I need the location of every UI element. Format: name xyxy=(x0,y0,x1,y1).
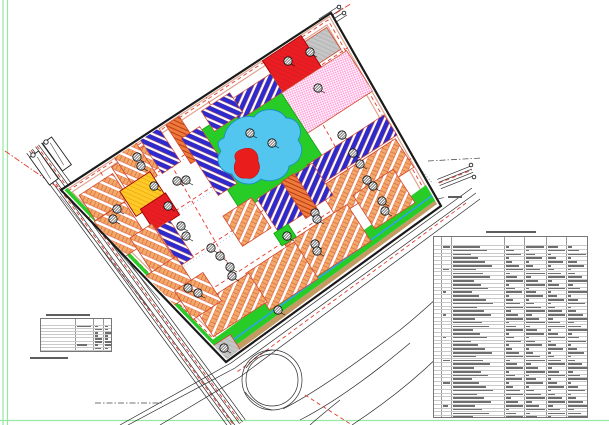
table-cell-text xyxy=(453,307,477,309)
table-cell-text xyxy=(105,335,108,337)
table-cell-text xyxy=(526,273,545,275)
table-cell-text xyxy=(506,341,521,343)
table-cell-text xyxy=(526,276,531,278)
table-cell-text xyxy=(568,356,571,358)
table-cell-text xyxy=(506,322,509,324)
table-cell-text xyxy=(548,405,553,407)
table-cell-text xyxy=(506,386,513,388)
table-cell-text xyxy=(453,337,487,339)
table-cell-text xyxy=(506,329,523,331)
table-cell-text xyxy=(526,367,538,369)
table-cell-text xyxy=(548,344,556,346)
table-cell-text xyxy=(95,329,102,331)
table-cell-text xyxy=(526,318,539,320)
table-cell-text xyxy=(526,326,530,328)
table-cell-text xyxy=(548,307,555,309)
table-cell-text xyxy=(526,348,529,350)
table-cell-text xyxy=(453,405,475,407)
table-cell-text xyxy=(506,356,523,358)
table-cell-text xyxy=(568,261,578,263)
table-cell-text xyxy=(453,344,478,346)
table-cell-text xyxy=(506,326,516,328)
table-cell-text xyxy=(548,371,559,373)
table-cell-text xyxy=(506,307,523,309)
plan-drawing-canvas xyxy=(0,0,609,425)
table-cell-text xyxy=(548,303,551,305)
table-cell-text xyxy=(548,401,565,403)
table-cell-text xyxy=(526,352,533,354)
table-cell-text xyxy=(548,322,560,324)
table-cell-text xyxy=(105,326,108,328)
table-cell-text xyxy=(548,367,552,369)
table-cell-text xyxy=(548,348,563,350)
table-cell-text xyxy=(506,416,523,418)
table-cell-text xyxy=(568,348,578,350)
table-cell-text xyxy=(506,405,523,407)
table-cell-text xyxy=(506,295,509,297)
table-cell-text xyxy=(443,405,448,407)
table-cell-text xyxy=(526,250,529,252)
table-cell-text xyxy=(506,269,523,271)
table-cell-text xyxy=(506,288,515,290)
summary-table xyxy=(40,318,112,352)
table-cell-text xyxy=(453,295,479,297)
table-cell-text xyxy=(568,295,572,297)
table-cell-text xyxy=(526,371,545,373)
table-cell-text xyxy=(526,291,536,293)
table-cell-text xyxy=(548,386,564,388)
table-cell-text xyxy=(453,284,481,286)
table-cell-text xyxy=(568,322,575,324)
table-cell-text xyxy=(95,344,98,346)
table-cell-text xyxy=(568,344,571,346)
table-cell-text xyxy=(548,378,551,380)
table-cell-text xyxy=(568,291,588,293)
table-cell-text xyxy=(453,314,491,316)
table-cell-text xyxy=(548,314,565,316)
table-cell-text xyxy=(568,307,571,309)
table-cell-text xyxy=(453,397,484,399)
table-cell-text xyxy=(526,299,529,301)
table-cell-text xyxy=(453,261,485,263)
table-cell-text xyxy=(526,356,540,358)
table-cell-text xyxy=(548,280,552,282)
table-cell-text xyxy=(443,314,446,316)
summary-table-note xyxy=(30,357,68,359)
table-cell-text xyxy=(443,337,446,339)
table-cell-text xyxy=(548,413,565,415)
table-cell-text xyxy=(568,401,584,403)
table-cell-text xyxy=(453,341,471,343)
table-cell-text xyxy=(568,284,574,286)
table-cell-text xyxy=(77,326,91,328)
table-cell-text xyxy=(453,288,488,290)
table-cell-text xyxy=(443,246,450,248)
table-cell-text xyxy=(453,291,472,293)
table-cell-text xyxy=(568,360,576,362)
table-cell-text xyxy=(526,413,530,415)
table-cell-text xyxy=(568,386,579,388)
table-cell-text xyxy=(526,409,545,411)
table-cell-text xyxy=(453,280,474,282)
table-cell-text xyxy=(506,401,518,403)
table-cell-text xyxy=(453,326,489,328)
table-cell-text xyxy=(568,371,574,373)
table-cell-text xyxy=(568,257,571,259)
table-cell-text xyxy=(526,390,534,392)
table-cell-text xyxy=(453,329,473,331)
table-cell-text xyxy=(568,337,580,339)
table-cell-text xyxy=(568,288,581,290)
table-cell-text xyxy=(506,291,522,293)
table-cell-text xyxy=(526,394,541,396)
table-cell-text xyxy=(548,360,561,362)
table-cell-text xyxy=(548,261,563,263)
table-cell-text xyxy=(526,401,532,403)
table-cell-text xyxy=(506,333,509,335)
table-cell-text xyxy=(453,363,490,365)
table-cell-text xyxy=(548,269,554,271)
table-cell-text xyxy=(95,326,99,328)
table-cell-text xyxy=(526,397,545,399)
table-cell-text xyxy=(568,341,587,343)
table-cell-text xyxy=(453,367,474,369)
table-cell-text xyxy=(526,341,535,343)
table-cell-text xyxy=(453,378,472,380)
table-cell-text xyxy=(526,333,544,335)
table-cell-text xyxy=(506,284,509,286)
edge-note-leader xyxy=(438,197,446,199)
table-cell-text xyxy=(506,299,513,301)
table-cell-text xyxy=(506,276,517,278)
table-cell-text xyxy=(526,314,532,316)
table-cell-text xyxy=(526,284,545,286)
table-cell-text xyxy=(506,348,512,350)
table-cell-text xyxy=(548,333,558,335)
table-cell-text xyxy=(548,382,557,384)
table-cell-text xyxy=(506,254,521,256)
table-cell-text xyxy=(506,363,517,365)
table-cell-text xyxy=(568,413,582,415)
table-cell-text xyxy=(548,397,562,399)
table-cell-text xyxy=(506,397,511,399)
table-cell-text xyxy=(548,375,565,377)
table-cell-text xyxy=(526,378,536,380)
table-cell-text xyxy=(548,254,551,256)
table-cell-text xyxy=(453,322,482,324)
table-cell-text xyxy=(548,390,551,392)
table-cell-text xyxy=(568,280,588,282)
table-cell-text xyxy=(568,326,582,328)
table-cell-text xyxy=(506,246,509,248)
table-cell-text xyxy=(506,337,514,339)
table-cell-text xyxy=(526,257,542,259)
table-cell-text xyxy=(105,329,108,331)
table-cell-text xyxy=(443,291,446,293)
table-cell-text xyxy=(453,265,492,267)
table-cell-text xyxy=(526,360,545,362)
table-cell-text xyxy=(526,416,537,418)
table-cell-text xyxy=(568,405,588,407)
table-cell-text xyxy=(526,269,540,271)
table-cell-text xyxy=(453,310,484,312)
table-cell-text xyxy=(548,299,564,301)
table-cell-text xyxy=(453,409,482,411)
table-cell-text xyxy=(548,265,551,267)
table-cell-text xyxy=(105,338,108,340)
table-cell-text xyxy=(506,310,511,312)
table-cell-text xyxy=(506,265,519,267)
table-cell-text xyxy=(548,394,555,396)
table-cell-text xyxy=(568,382,572,384)
table-cell-text xyxy=(77,344,87,346)
table-cell-text xyxy=(95,348,102,350)
land-use-table-title xyxy=(486,231,536,233)
table-cell-text xyxy=(548,326,565,328)
table-cell-text xyxy=(548,273,561,275)
table-cell-text xyxy=(95,341,102,343)
table-cell-text xyxy=(548,246,558,248)
table-cell-text xyxy=(548,416,551,418)
table-cell-text xyxy=(506,382,509,384)
table-cell-text xyxy=(453,276,490,278)
table-cell-text xyxy=(548,276,565,278)
table-cell-text xyxy=(568,352,585,354)
table-cell-text xyxy=(506,352,519,354)
table-cell-text xyxy=(95,335,98,337)
table-cell-text xyxy=(568,416,588,418)
edge-note-text xyxy=(448,196,462,198)
table-cell-text xyxy=(526,265,533,267)
table-cell-text xyxy=(453,352,492,354)
table-cell-text xyxy=(506,280,523,282)
table-cell-text xyxy=(526,310,545,312)
table-cell-text xyxy=(548,363,565,365)
table-cell-text xyxy=(526,280,538,282)
table-cell-text xyxy=(453,356,476,358)
table-cell-text xyxy=(506,344,509,346)
table-cell-text xyxy=(568,314,584,316)
table-cell-text xyxy=(105,351,111,353)
table-cell-text xyxy=(453,360,483,362)
table-cell-text xyxy=(506,378,522,380)
table-cell-text xyxy=(548,356,554,358)
table-cell-text xyxy=(95,338,102,340)
table-cell-text xyxy=(453,299,486,301)
table-cell-text xyxy=(548,337,565,339)
table-cell-text xyxy=(506,371,509,373)
table-cell-text xyxy=(453,348,485,350)
table-cell-text xyxy=(526,386,529,388)
table-cell-text xyxy=(95,351,102,353)
table-cell-text xyxy=(453,416,473,418)
table-cell-text xyxy=(453,371,481,373)
table-cell-text xyxy=(526,288,529,290)
table-cell-text xyxy=(453,273,483,275)
table-cell-text xyxy=(568,394,571,396)
table-cell-text xyxy=(526,363,531,365)
table-cell-text xyxy=(506,409,509,411)
table-cell-text xyxy=(506,250,514,252)
table-cell-text xyxy=(506,394,523,396)
table-cell-text xyxy=(568,378,588,380)
table-cell-text xyxy=(95,332,98,334)
table-cell-text xyxy=(526,337,529,339)
land-use-statistics-table xyxy=(433,236,588,418)
table-cell-text xyxy=(453,269,476,271)
table-cell-text xyxy=(526,295,543,297)
table-cell-text xyxy=(506,390,520,392)
table-cell-text xyxy=(568,397,577,399)
table-cell-text xyxy=(506,367,523,369)
table-cell-text xyxy=(568,318,588,320)
table-cell-text xyxy=(548,257,556,259)
table-cell-text xyxy=(548,291,551,293)
table-cell-text xyxy=(568,367,588,369)
table-cell-text xyxy=(526,375,529,377)
table-cell-text xyxy=(568,246,573,248)
table-cell-text xyxy=(453,246,480,248)
table-cell-text xyxy=(568,276,583,278)
table-cell-text xyxy=(526,307,541,309)
table-cell-text xyxy=(526,322,545,324)
table-cell-text xyxy=(443,269,449,271)
table-cell-text xyxy=(105,332,112,334)
table-cell-text xyxy=(453,250,487,252)
table-cell-text xyxy=(548,288,565,290)
table-cell-text xyxy=(506,360,510,362)
table-cell-text xyxy=(548,250,565,252)
table-cell-text xyxy=(506,314,518,316)
table-cell-text xyxy=(568,409,575,411)
table-cell-text xyxy=(526,261,529,263)
table-cell-text xyxy=(453,382,479,384)
table-cell-text xyxy=(453,386,486,388)
table-cell-text xyxy=(526,329,537,331)
east-road-stub xyxy=(428,158,482,189)
table-cell-text xyxy=(568,254,587,256)
table-cell-text xyxy=(506,303,520,305)
table-cell-text xyxy=(548,318,553,320)
table-cell-text xyxy=(548,329,551,331)
table-cell-text xyxy=(453,303,493,305)
table-cell-text xyxy=(526,246,544,248)
table-cell-text xyxy=(548,409,560,411)
table-cell-text xyxy=(568,250,580,252)
table-cell-text xyxy=(526,405,539,407)
table-cell-text xyxy=(548,295,557,297)
table-cell-text xyxy=(568,375,581,377)
table-cell-text xyxy=(506,261,512,263)
table-cell-text xyxy=(105,341,112,343)
table-cell-text xyxy=(443,382,450,384)
table-cell-text xyxy=(453,390,493,392)
table-cell-text xyxy=(568,269,571,271)
table-cell-text xyxy=(453,257,478,259)
table-cell-text xyxy=(453,254,471,256)
table-cell-text xyxy=(568,363,583,365)
table-cell-text xyxy=(453,394,477,396)
table-cell-text xyxy=(568,273,576,275)
table-cell-text xyxy=(506,413,516,415)
table-cell-text xyxy=(568,390,586,392)
table-cell-text xyxy=(568,310,577,312)
table-cell-text xyxy=(453,413,489,415)
table-cell-text xyxy=(506,375,515,377)
table-cell-text xyxy=(506,257,509,259)
table-cell-text xyxy=(105,348,108,350)
table-cell-text xyxy=(548,352,551,354)
table-cell-text xyxy=(568,299,579,301)
lake-island xyxy=(234,148,259,178)
summary-table-title xyxy=(46,314,90,316)
table-cell-text xyxy=(548,310,562,312)
table-cell-text xyxy=(453,375,488,377)
table-cell-text xyxy=(506,318,523,320)
table-cell-text xyxy=(568,265,585,267)
table-cell-text xyxy=(526,382,543,384)
table-cell-text xyxy=(453,401,491,403)
table-cell-text xyxy=(443,360,450,362)
table-cell-text xyxy=(568,303,586,305)
table-cell-text xyxy=(548,341,551,343)
table-cell-text xyxy=(453,318,475,320)
table-cell-text xyxy=(548,284,559,286)
table-cell-text xyxy=(568,329,588,331)
table-cell-text xyxy=(105,344,112,346)
table-cell-text xyxy=(568,333,573,335)
table-cell-text xyxy=(526,344,542,346)
table-cell-text xyxy=(506,273,510,275)
table-cell-text xyxy=(526,254,535,256)
table-cell-text xyxy=(526,303,534,305)
table-cell-text xyxy=(453,333,480,335)
